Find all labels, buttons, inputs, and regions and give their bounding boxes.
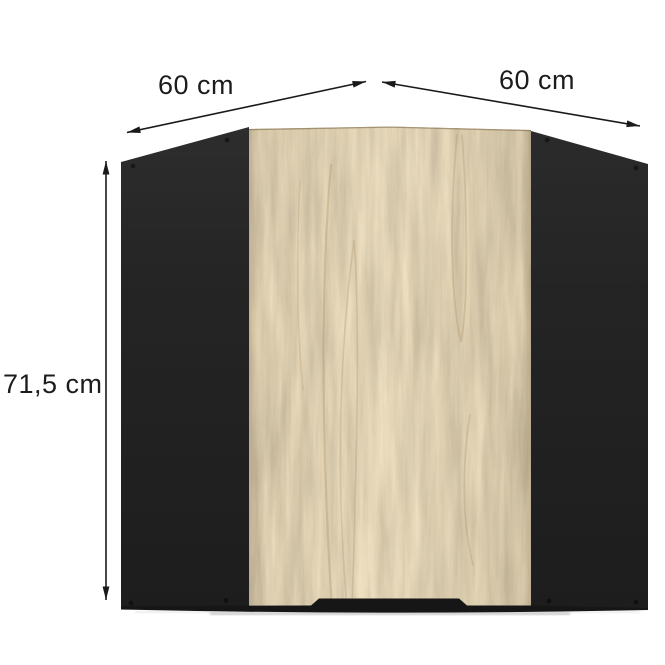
screw-dot xyxy=(225,138,230,143)
screw-dot xyxy=(131,164,136,169)
dimension-label-width-left: 60 cm xyxy=(148,71,244,101)
screw-dot xyxy=(547,599,552,604)
screw-dot xyxy=(634,166,639,171)
dimension-label-height: 71,5 cm xyxy=(3,370,102,400)
screw-dot xyxy=(634,600,639,605)
screw-dot xyxy=(545,138,550,143)
dimension-label-width-right: 60 cm xyxy=(489,66,585,96)
product-dimension-image: 60 cm 60 cm 71,5 cm xyxy=(0,0,665,665)
right-side-panel xyxy=(531,131,648,610)
cabinet-illustration xyxy=(0,0,665,665)
left-side-panel xyxy=(121,127,249,610)
screw-dot xyxy=(224,598,229,603)
door-front xyxy=(248,125,532,609)
screw-dot xyxy=(129,601,134,606)
